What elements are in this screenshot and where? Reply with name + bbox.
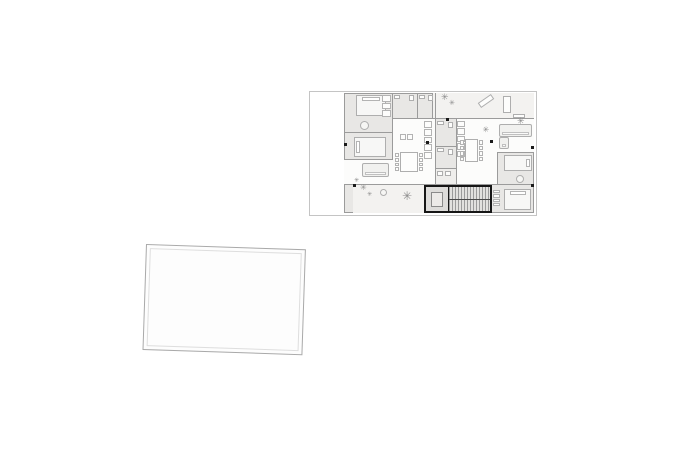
wardrobe-right-bottom-item xyxy=(493,190,500,193)
floor-plan: ✳✳✳✳✳✳✳✳ xyxy=(309,91,537,216)
closet-top-left-item xyxy=(382,103,391,110)
dining-chairs-right-a-item xyxy=(460,146,464,151)
dining-chairs-left-a-item xyxy=(395,167,399,171)
closet-top-left-item xyxy=(382,110,391,117)
dining-chairs-right-a-item xyxy=(460,157,464,162)
plant-lower-terrace-big: ✳ xyxy=(402,190,412,202)
wall-core-left xyxy=(435,93,436,184)
blank-sheet-inner xyxy=(147,248,302,351)
bed-right-bottom xyxy=(504,189,531,210)
wall-core-div-1 xyxy=(435,146,456,147)
wall-top-band xyxy=(392,118,534,119)
wall-bedroom-l2-bottom xyxy=(344,159,392,160)
dining-chairs-left-a-item xyxy=(395,163,399,167)
stair-middle-line xyxy=(449,199,490,200)
dining-table-left xyxy=(400,152,418,172)
bath2-toilet xyxy=(428,95,433,101)
column-left-wall xyxy=(344,143,347,146)
sofa-right-chaise xyxy=(499,137,509,149)
dining-chairs-left-b-item xyxy=(419,167,423,171)
kitchen-appliances-right-item xyxy=(457,121,465,127)
closet-top-left xyxy=(382,95,391,117)
sofa-right-unit xyxy=(499,124,532,137)
bed-right-mid-pillow xyxy=(526,159,530,168)
bath2-sink xyxy=(419,95,425,99)
blank-sheet xyxy=(142,244,305,355)
wardrobe-right-bottom-item xyxy=(493,203,500,206)
wall-bedrooms-left xyxy=(392,93,393,160)
dining-chairs-left-a-item xyxy=(395,158,399,162)
sofa-left-unit-seat xyxy=(365,172,386,175)
bath1-toilet xyxy=(409,95,414,101)
wardrobe-right-bottom-item xyxy=(493,199,500,202)
page-background: { "canvas": {"width": 690, "height": 457… xyxy=(0,0,690,457)
dining-table-right xyxy=(465,139,478,162)
kitchen-appliances-left-item xyxy=(424,144,432,151)
core-bath2-toilet xyxy=(448,149,453,155)
plant-right-corner: ✳ xyxy=(517,118,525,127)
dining-chairs-left-b xyxy=(419,153,423,171)
kitchen-appliances-left xyxy=(424,121,432,159)
kitchen-island-left-item xyxy=(407,134,413,140)
dining-chairs-right-b-item xyxy=(479,140,483,145)
wall-bedroom-rmid-top xyxy=(497,152,534,153)
kitchen-island-left-item xyxy=(400,134,406,140)
plant-lower-terrace-2: ✳ xyxy=(367,192,372,198)
terrace-lounge-chair xyxy=(503,96,511,113)
plant-left-wall: ✳ xyxy=(354,178,359,184)
dining-chairs-right-b-item xyxy=(479,157,483,162)
wall-bath-divider-top xyxy=(417,93,418,118)
kitchen-appliances-right-item xyxy=(457,128,465,134)
elevator-car xyxy=(431,192,443,207)
bed-right-mid xyxy=(504,155,532,171)
wall-bedroom-rmid-left xyxy=(497,153,498,184)
kitchen-appliances-left-item xyxy=(424,121,432,128)
dining-chairs-left-b-item xyxy=(419,153,423,157)
dining-chairs-left-b-item xyxy=(419,158,423,162)
sofa-right-unit-seat xyxy=(502,132,529,135)
bed-right-bottom-pillow xyxy=(510,191,526,195)
dining-chairs-right-b-item xyxy=(479,146,483,151)
core-bath1-sink xyxy=(437,121,444,125)
bed-second-left-pillow xyxy=(356,141,360,153)
plant-lower-terrace-1: ✳ xyxy=(360,184,367,192)
closet-top-left-item xyxy=(382,95,391,102)
wall-core-div-2 xyxy=(435,168,456,169)
wall-bedroom-tl-bottom xyxy=(344,132,392,133)
laundry-unit-b xyxy=(445,171,451,176)
column-right-wall-upper xyxy=(531,146,534,149)
pot-plant-bedroom-rmid xyxy=(516,175,524,183)
column-living-right xyxy=(490,140,493,143)
bed-second-left xyxy=(354,137,386,157)
staircase xyxy=(449,185,492,213)
column-terrace-wall xyxy=(446,118,449,121)
kitchen-appliances-left-item xyxy=(424,129,432,136)
dining-chairs-left-a-item xyxy=(395,153,399,157)
plant-upper-terrace-2: ✳ xyxy=(449,100,455,107)
column-right-wall-lower xyxy=(531,184,534,187)
wardrobe-right-bottom xyxy=(493,190,500,206)
core-bath1-toilet xyxy=(448,122,453,128)
dining-chairs-right-a-item xyxy=(460,151,464,156)
dining-chairs-left-a xyxy=(395,153,399,171)
bed-top-left-pillow xyxy=(362,97,380,101)
dining-chairs-left-b-item xyxy=(419,163,423,167)
dining-chairs-right-a-item xyxy=(460,140,464,145)
dining-chairs-right-a xyxy=(460,140,464,161)
bath1-sink xyxy=(394,95,400,99)
dining-chairs-right-b xyxy=(479,140,483,161)
elevator xyxy=(424,185,450,213)
wardrobe-right-bottom-item xyxy=(493,194,500,197)
sofa-left-unit xyxy=(362,163,389,177)
kitchen-island-left xyxy=(400,134,413,140)
kitchen-appliances-left-item xyxy=(424,152,432,159)
laundry-unit-a xyxy=(437,171,443,176)
dining-chairs-right-b-item xyxy=(479,151,483,156)
pot-plant-bedroom-tl xyxy=(360,121,369,130)
core-bath2-sink xyxy=(437,148,444,152)
plant-upper-terrace-1: ✳ xyxy=(441,94,449,103)
pot-plant-lower-terrace xyxy=(380,189,387,196)
column-terrace-corner xyxy=(353,184,356,187)
column-kitchen-left xyxy=(426,141,429,144)
sofa-right-chaise-seat xyxy=(502,144,506,147)
